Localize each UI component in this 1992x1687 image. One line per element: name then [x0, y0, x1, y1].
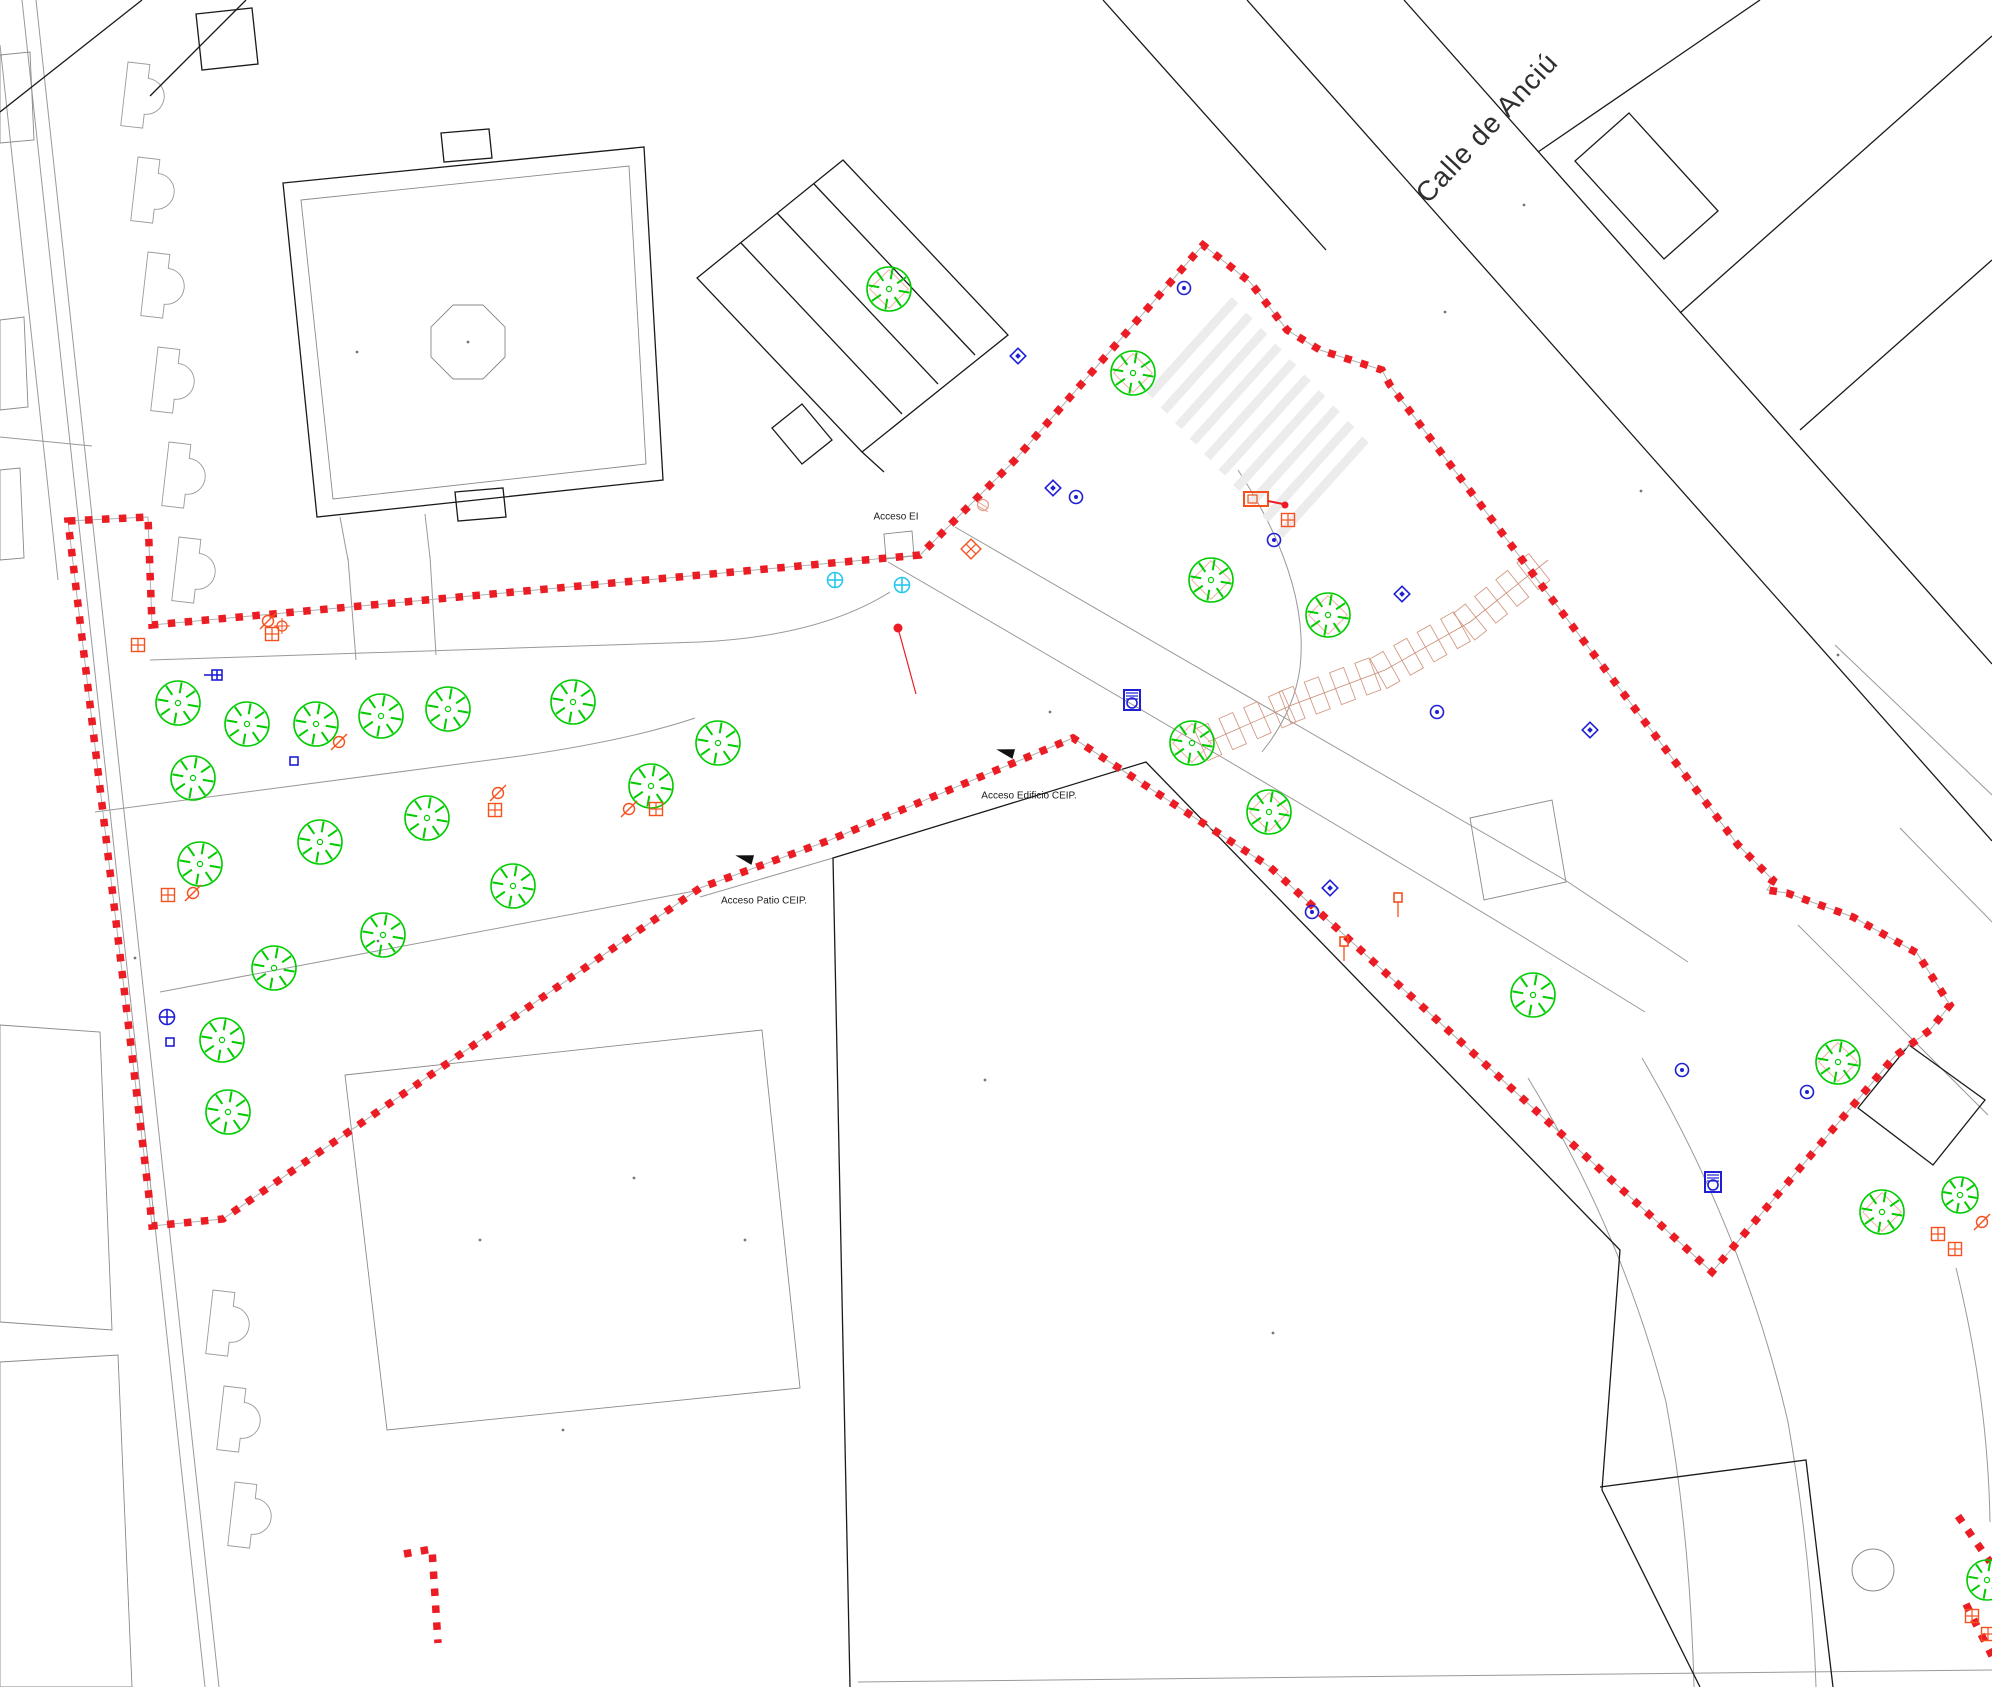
target-icon — [1070, 491, 1083, 504]
access-patio-label: Acceso Patio CEIP. — [721, 896, 807, 907]
grid-diamond-icon — [961, 539, 981, 559]
diamond-dot-icon — [1582, 722, 1598, 738]
reddot-icon — [894, 624, 917, 695]
site-plan: Calle de Anciú Acceso EI Acceso Patio CE… — [0, 0, 1992, 1687]
tree-icon — [361, 913, 405, 957]
tree-icon — [696, 721, 740, 765]
bench-icon — [1124, 690, 1140, 710]
project-boundary — [68, 245, 1992, 1656]
trees — [156, 267, 1992, 1600]
slash-circle-icon — [490, 785, 506, 801]
access-arrows — [734, 745, 1015, 865]
target-icon — [1676, 1064, 1689, 1077]
grid-square-icon — [1949, 1243, 1962, 1256]
tree-icon — [1111, 351, 1155, 395]
slash-circle-icon — [185, 885, 201, 901]
access-building-label: Acceso Edificio CEIP. — [981, 791, 1076, 802]
tree-icon — [206, 1090, 250, 1134]
tree-icon — [491, 864, 535, 908]
survey-dots — [134, 204, 1840, 1432]
slash-circle-icon — [1974, 1214, 1990, 1230]
tree-icon — [1247, 790, 1291, 834]
target-cross-icon — [274, 618, 290, 634]
diamond-dot-icon — [1045, 480, 1061, 496]
tree-icon — [551, 680, 595, 724]
parking-stalls — [1194, 554, 1550, 761]
diamond-dot-icon — [1394, 586, 1410, 602]
small-square-icon — [290, 757, 298, 765]
tree-icon — [200, 1018, 244, 1062]
grid-square-icon — [266, 628, 279, 641]
diamond-dot-icon — [1322, 880, 1338, 896]
tree-icon — [1170, 721, 1214, 765]
tree-icon — [1189, 558, 1233, 602]
circle-plus-icon — [828, 573, 843, 588]
grid-square-icon — [1932, 1228, 1945, 1241]
tree-icon — [298, 820, 342, 864]
roundabout-circle — [1852, 1549, 1894, 1591]
grid-square-icon — [132, 639, 145, 652]
access-arrow-icon — [995, 745, 1015, 759]
tree-icon — [225, 702, 269, 746]
target-icon — [1801, 1086, 1814, 1099]
circle-plus-icon — [895, 578, 910, 593]
grid-square-icon — [489, 804, 502, 817]
small-square-icon — [166, 1038, 174, 1046]
tree-icon — [171, 756, 215, 800]
tree-icon — [1942, 1177, 1978, 1213]
diamond-dot-icon — [1010, 348, 1026, 364]
slash-circle-icon — [621, 801, 637, 817]
bench-icon — [1705, 1172, 1721, 1192]
square-plus-icon — [204, 670, 222, 680]
tree-icon — [867, 267, 911, 311]
site-plan-canvas — [0, 0, 1992, 1687]
tree-icon — [629, 764, 673, 808]
tree-icon — [426, 687, 470, 731]
grid-square-icon — [650, 803, 663, 816]
grid-square-icon — [162, 889, 175, 902]
tree-icon — [359, 694, 403, 738]
access-arrow-icon — [734, 851, 754, 865]
tree-icon — [1816, 1040, 1860, 1084]
tree-icon — [1860, 1190, 1904, 1234]
tree-icon — [405, 796, 449, 840]
tree-icon — [294, 702, 338, 746]
target-icon — [1178, 282, 1191, 295]
tree-icon — [178, 842, 222, 886]
tree-icon — [1967, 1560, 1992, 1600]
target-icon — [1431, 706, 1444, 719]
tree-icon — [1306, 593, 1350, 637]
symbols — [132, 282, 1992, 1641]
hatch-circle-icon — [978, 500, 989, 513]
tree-icon — [156, 681, 200, 725]
access-ei-label: Acceso EI — [873, 512, 918, 523]
pole-icon — [1394, 893, 1402, 917]
circle-plus-icon — [160, 1010, 175, 1025]
tree-icon — [1511, 973, 1555, 1017]
